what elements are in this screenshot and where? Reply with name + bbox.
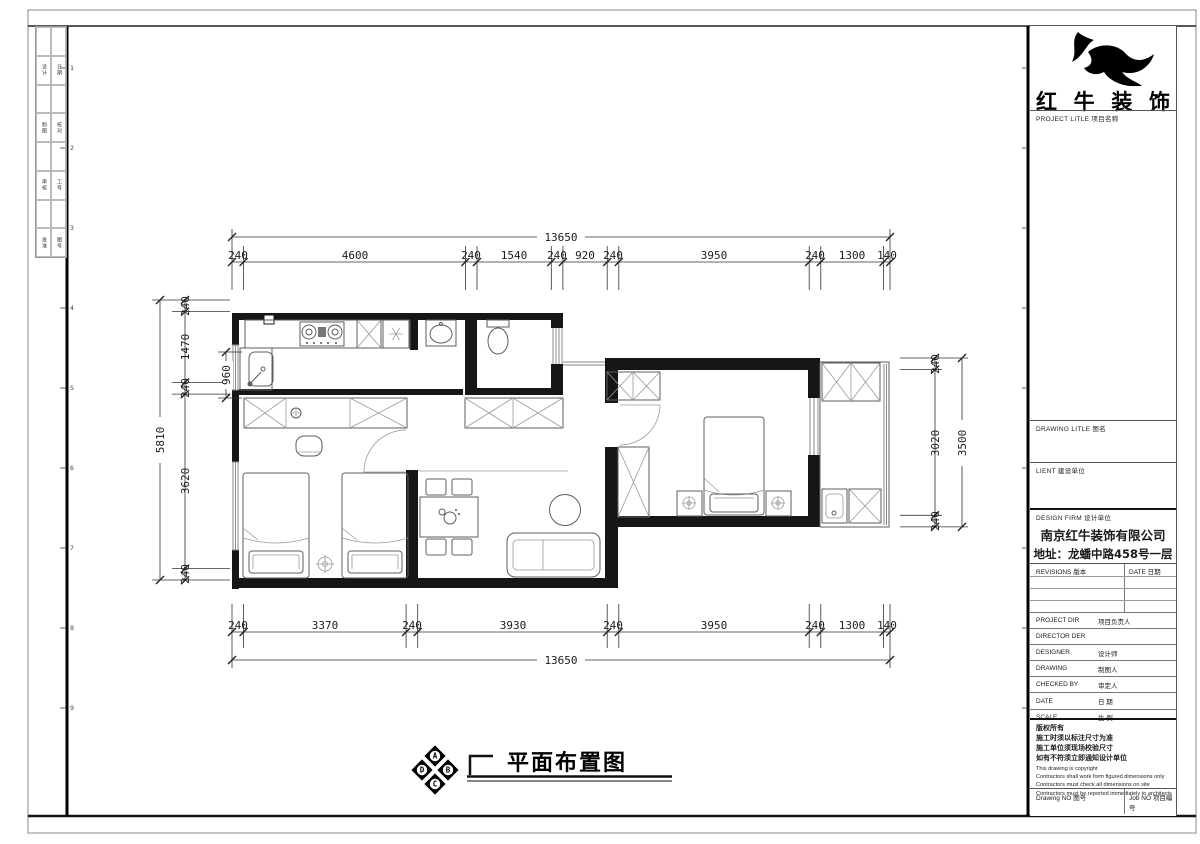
dim: 240 [228, 619, 248, 632]
floor-plan-canvas: 1 2 3 4 5 6 7 8 9 1 2 3 4 5 6 7 8 9 [0, 0, 1200, 844]
sofa [507, 533, 600, 577]
single-bed [342, 473, 408, 578]
copyright-line: 施工单位须现场校验尺寸 [1036, 743, 1176, 753]
revision-row [1030, 576, 1176, 588]
dim: 3930 [500, 619, 527, 632]
compass-letter-b: B [446, 766, 451, 775]
design-firm-section: DESIGN FIRM 设计单位 南京红牛装饰有限公司 地址：龙蟠中路458号一… [1030, 508, 1176, 563]
row-label-en: PROJECT DIR [1030, 617, 1098, 624]
grid-num: 1 [70, 64, 74, 72]
dim-bottom-total: 13650 [544, 654, 577, 667]
dim: 240 [402, 619, 422, 632]
dim: 1540 [501, 249, 528, 262]
dim: 240 [603, 249, 623, 262]
dim: 140 [877, 619, 897, 632]
bedroom1-furniture [243, 398, 408, 578]
row-label-en: DRAWING [1030, 665, 1098, 672]
row-label-en: DESIGNER [1030, 649, 1098, 656]
margin-label: 校对 [56, 122, 61, 134]
plan-title: 平面布置图 [507, 750, 627, 776]
dim-top-total: 13650 [544, 231, 577, 244]
client-label: LIENT 建设单位 [1030, 463, 1176, 475]
revision-date-label: DATE 日期 [1124, 564, 1176, 576]
brand-section: 红 牛 装 饰 [1030, 26, 1176, 110]
dim: 4600 [342, 249, 369, 262]
project-dir-row: PROJECT DIR项目负责人 [1030, 612, 1176, 628]
company-address: 地址：龙蟠中路458号一层 [1030, 546, 1176, 562]
row-label-cn: 制图人 [1098, 664, 1118, 674]
revisions-section: REVISIONS 版本 DATE 日期 [1030, 563, 1176, 612]
margin-label: 制图 [41, 122, 46, 134]
washer-icon [849, 489, 881, 523]
margin-label: 设计 [41, 64, 46, 76]
dimension-left: 5810 240 1470 240 3620 240 960 [152, 296, 242, 584]
stove-icon [300, 322, 344, 346]
dim: 240 [929, 354, 942, 374]
revision-row [1030, 588, 1176, 600]
dim: 240 [179, 378, 192, 398]
toilet-icon [487, 320, 509, 354]
company-name: 南京红牛装饰有限公司 [1030, 525, 1176, 544]
dim: 140 [877, 249, 897, 262]
row-label-en: CHECKED BY [1030, 681, 1098, 688]
project-title-section: PROJECT LITLE 项目名称 [1030, 110, 1176, 420]
walls [232, 313, 820, 589]
bathroom-furniture [426, 320, 563, 428]
bedroom2-furniture [607, 372, 791, 517]
row-label-cn: 设计师 [1098, 648, 1118, 658]
dim: 1300 [839, 619, 866, 632]
date-row: DATE日 期 [1030, 692, 1176, 708]
grid-num: 4 [70, 304, 74, 312]
compass-letter-c: C [433, 780, 438, 789]
dim: 3370 [312, 619, 339, 632]
drawing-title-label: DRAWING LITLE 图名 [1030, 421, 1176, 433]
drawing-number-section: Drawing NO 图号 Job NO 项目编号 [1030, 788, 1176, 814]
designer-row: DESIGNER设计师 [1030, 644, 1176, 660]
margin-label: 批准 [41, 237, 46, 249]
bath-cabinet [465, 398, 563, 428]
compass-icon: A B C D [411, 745, 458, 794]
single-bed [243, 473, 309, 578]
revision-row [1030, 600, 1176, 612]
checked-by-row: CHECKED BY审定人 [1030, 676, 1176, 692]
chair-icon [296, 436, 322, 456]
grid-num: 6 [70, 464, 74, 472]
grid-num: 9 [70, 704, 74, 712]
copyright-line: 如有不符须立即通知设计单位 [1036, 753, 1176, 763]
dim-kitchen-depth: 960 [220, 365, 233, 385]
dim-left-total: 5810 [154, 427, 167, 454]
compass-letter-a: A [433, 752, 438, 761]
nightstand [766, 491, 791, 516]
row-label-en: DIRECTOR DER [1030, 633, 1098, 640]
drawing-sheet: 1 2 3 4 5 6 7 8 9 1 2 3 4 5 6 7 8 9 [0, 0, 1200, 844]
row-label-cn: 项目负责人 [1098, 616, 1131, 626]
dim: 240 [461, 249, 481, 262]
project-title-label: PROJECT LITLE 项目名称 [1030, 111, 1176, 123]
row-label-en: DATE [1030, 698, 1098, 705]
grid-num: 3 [70, 224, 74, 232]
dim: 3950 [701, 619, 728, 632]
wardrobe [618, 447, 649, 517]
row-label-cn: 日 期 [1098, 696, 1113, 706]
copyright-line: Contractors shall work form figured dime… [1036, 773, 1176, 781]
margin-label: 工号 [56, 179, 61, 191]
row-label-cn: 审定人 [1098, 680, 1118, 690]
drawing-no-label: Drawing NO 图号 [1030, 789, 1124, 814]
nightstand [677, 491, 702, 516]
wardrobe [822, 363, 880, 401]
copyright-line: This drawing is copyright [1036, 765, 1176, 773]
copyright-section: 版权所有 施工时须以标注尺寸为准 施工单位须现场校验尺寸 如有不符须立即通知设计… [1030, 718, 1176, 788]
dim: 240 [228, 249, 248, 262]
dim: 240 [179, 296, 192, 316]
balcony-walls [820, 362, 889, 527]
round-table [550, 495, 581, 526]
margin-label: 日期 [56, 64, 61, 76]
grid-num: 7 [70, 544, 74, 552]
dimension-top: 13650 240 4600 240 1540 240 920 240 3950… [228, 229, 897, 290]
dining-set [420, 479, 478, 555]
wash-basin-icon [426, 320, 456, 346]
dim: 240 [929, 511, 942, 531]
wardrobe [244, 398, 407, 428]
dim: 240 [547, 249, 567, 262]
director-row: DIRECTOR DER [1030, 628, 1176, 644]
dim: 3620 [179, 468, 192, 495]
dim: 3950 [701, 249, 728, 262]
laundry-sink-icon [822, 489, 847, 523]
cabinet-x-icon [357, 320, 381, 348]
dimension-right: 240 3020 240 3500 [900, 354, 969, 531]
copyright-line: 版权所有 [1036, 723, 1176, 733]
copyright-line: 施工时须以标注尺寸为准 [1036, 733, 1176, 743]
kitchen-furniture [240, 320, 410, 390]
margin-label: 图号 [56, 237, 61, 249]
brand-logo [1030, 26, 1176, 86]
grid-num: 8 [70, 624, 74, 632]
dim: 1470 [179, 334, 192, 361]
bull-logo-icon [1044, 30, 1162, 86]
dim: 1300 [839, 249, 866, 262]
title-block: 红 牛 装 饰 PROJECT LITLE 项目名称 DRAWING LITLE… [1030, 26, 1177, 816]
dim: 920 [575, 249, 595, 262]
ceiling-lamp-icon [316, 555, 334, 573]
dim: 3020 [929, 430, 942, 457]
dim: 240 [805, 249, 825, 262]
appliance-icon [383, 320, 409, 348]
margin-label: 审核 [41, 179, 46, 191]
plan-title-group: A B C D 平面布置图 [411, 745, 672, 794]
double-bed [704, 417, 764, 515]
dim: 240 [805, 619, 825, 632]
living-dining-furniture [418, 471, 600, 577]
dim-right-total: 3500 [956, 430, 969, 457]
drawing-title-section: DRAWING LITLE 图名 [1030, 420, 1176, 462]
dim: 240 [179, 564, 192, 584]
sheet-frame [28, 10, 1196, 833]
revisions-label: REVISIONS 版本 [1030, 564, 1124, 576]
drawing-row: DRAWING制图人 [1030, 660, 1176, 676]
grid-num: 2 [70, 144, 74, 152]
dim: 240 [603, 619, 623, 632]
margin-signature-strip: 设计 日期 制图 校对 审核 工号 批准 图号 [35, 26, 67, 258]
compass-letter-d: D [420, 766, 425, 775]
client-section: LIENT 建设单位 [1030, 462, 1176, 508]
personnel-section: PROJECT DIR项目负责人 DIRECTOR DER DESIGNER设计… [1030, 612, 1176, 718]
dimension-bottom: 240 3370 240 3930 240 3950 240 1300 140 … [228, 604, 897, 668]
job-no-label: Job NO 项目编号 [1124, 789, 1176, 814]
balcony-furniture [822, 363, 881, 523]
grid-num: 5 [70, 384, 74, 392]
design-firm-label: DESIGN FIRM 设计单位 [1030, 510, 1176, 522]
